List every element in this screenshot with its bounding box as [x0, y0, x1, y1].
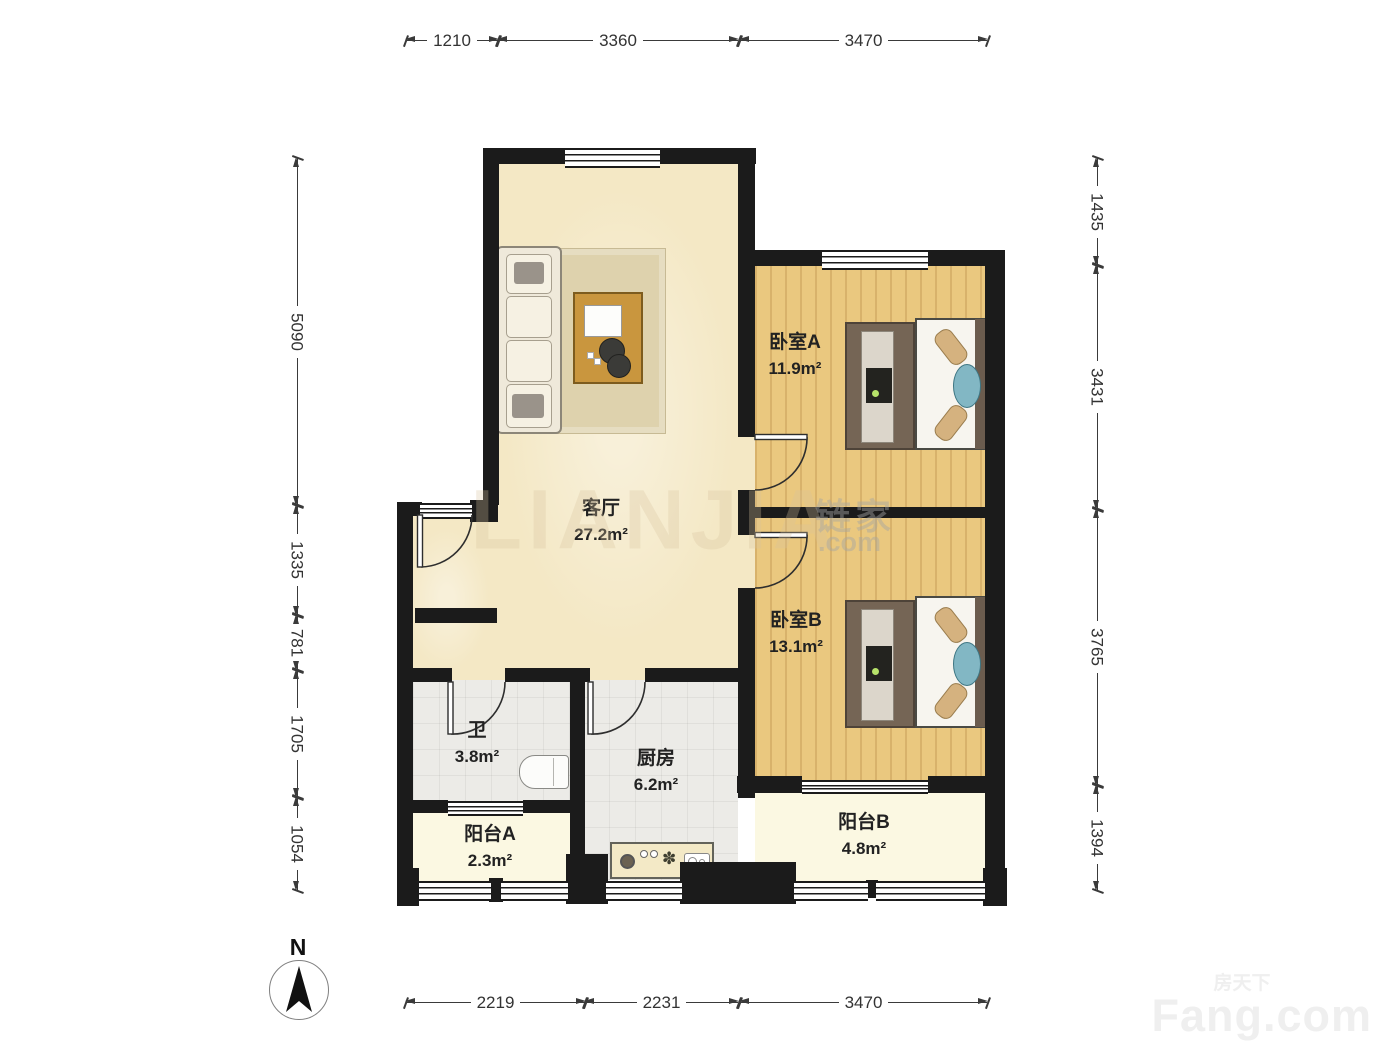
dim-left-0: 5090	[284, 158, 310, 505]
room-label-balcony-a: 阳台A2.3m²	[464, 822, 516, 872]
floorplan-canvas: ✽	[0, 0, 1400, 1050]
dim-right-1: 3431	[1084, 265, 1110, 509]
room-label-bathroom: 卫3.8m²	[455, 718, 499, 768]
dim-left-2: 781	[284, 615, 310, 670]
compass-north-label: N	[290, 934, 307, 961]
dim-left-3: 1705	[284, 670, 310, 797]
watermark-lianjia-com: .com	[818, 527, 881, 558]
dim-right-0: 1435	[1084, 158, 1110, 265]
room-label-balcony-b: 阳台B4.8m²	[838, 810, 890, 860]
compass-icon	[269, 960, 329, 1020]
watermark-fang: 房天下 Fang.com	[1151, 974, 1372, 1038]
dim-left-1: 1335	[284, 505, 310, 615]
dim-bottom-1: 2231	[585, 992, 738, 1012]
dim-bottom-0: 2219	[406, 992, 585, 1012]
dim-left-4: 1054	[284, 797, 310, 890]
dim-right-2: 3765	[1084, 509, 1110, 785]
dim-right-3: 1394	[1084, 785, 1110, 890]
dim-bottom-2: 3470	[740, 992, 987, 1012]
room-label-bedroom-b: 卧室B13.1m²	[769, 608, 823, 658]
dim-top-1: 3360	[498, 30, 738, 50]
dim-top-0: 1210	[406, 30, 498, 50]
watermark-lianjia: LIANJIA	[471, 472, 840, 569]
room-label-kitchen: 厨房6.2m²	[634, 746, 678, 796]
room-label-bedroom-a: 卧室A11.9m²	[769, 330, 822, 380]
dim-top-2: 3470	[740, 30, 987, 50]
